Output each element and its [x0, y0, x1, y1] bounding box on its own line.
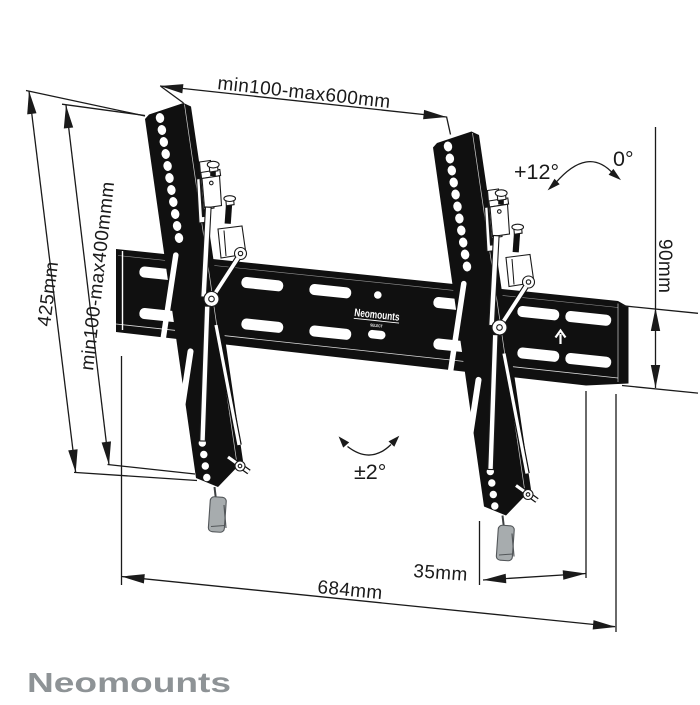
svg-text:±2°: ±2° — [354, 460, 386, 484]
svg-text:+12°: +12° — [514, 160, 559, 184]
svg-text:0°: 0° — [613, 147, 634, 171]
svg-text:35mm: 35mm — [413, 561, 469, 586]
svg-text:90mm: 90mm — [654, 239, 675, 293]
svg-text:Neomounts: Neomounts — [27, 667, 231, 698]
